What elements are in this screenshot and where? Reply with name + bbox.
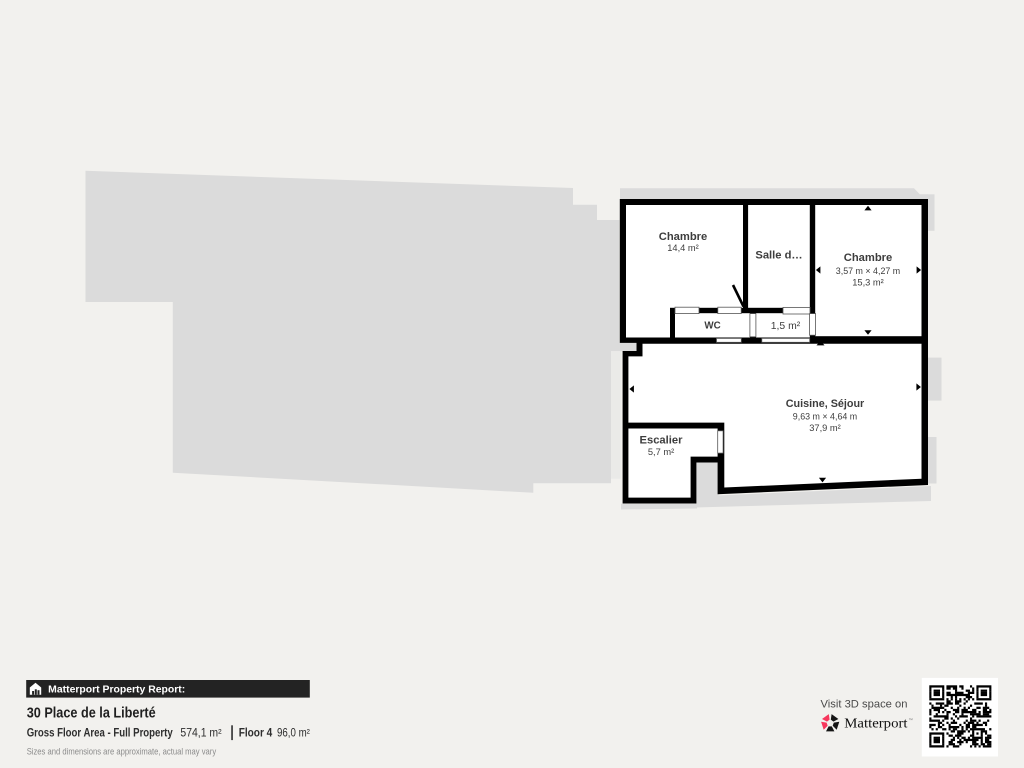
svg-text:Sizes and dimensions are appro: Sizes and dimensions are approximate, ac… — [27, 747, 217, 757]
svg-text:5,7 m²: 5,7 m² — [648, 447, 674, 457]
svg-text:30 Place de la Liberté: 30 Place de la Liberté — [27, 704, 156, 721]
svg-text:Chambre: Chambre — [844, 252, 893, 264]
svg-text:1,5 m²: 1,5 m² — [771, 321, 801, 332]
svg-text:3,57 m × 4,27 m: 3,57 m × 4,27 m — [836, 266, 901, 276]
svg-text:96,0 m²: 96,0 m² — [277, 727, 310, 739]
svg-text:™: ™ — [909, 718, 914, 723]
svg-text:574,1 m²: 574,1 m² — [180, 727, 221, 739]
svg-text:9,63 m × 4,64 m: 9,63 m × 4,64 m — [793, 412, 858, 422]
svg-text:WC: WC — [704, 321, 720, 332]
svg-text:Chambre: Chambre — [659, 231, 708, 243]
svg-text:Matterport Property Report:: Matterport Property Report: — [48, 685, 185, 696]
svg-text:Salle d…: Salle d… — [755, 249, 802, 261]
svg-text:15,3 m²: 15,3 m² — [852, 278, 884, 288]
svg-text:14,4 m²: 14,4 m² — [667, 243, 699, 253]
svg-text:Floor 4: Floor 4 — [239, 727, 273, 739]
svg-text:Cuisine, Séjour: Cuisine, Séjour — [786, 398, 865, 410]
svg-text:Escalier: Escalier — [640, 435, 684, 447]
svg-text:37,9 m²: 37,9 m² — [809, 423, 841, 433]
svg-text:Matterport: Matterport — [844, 716, 908, 731]
svg-text:Gross Floor Area - Full Proper: Gross Floor Area - Full Property — [27, 727, 173, 739]
svg-text:Visit 3D space on: Visit 3D space on — [821, 699, 908, 711]
